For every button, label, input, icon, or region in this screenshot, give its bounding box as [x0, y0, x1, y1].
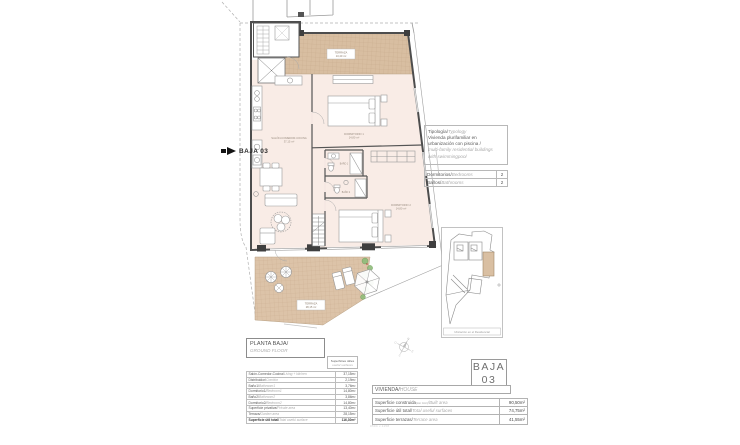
feature-row-bedrooms: Dormitorios/Bedrooms 2: [425, 171, 507, 179]
svg-text:14,80 m²: 14,80 m²: [349, 136, 360, 140]
useful-total-value: 74,75m²: [499, 407, 527, 414]
areas-table: Salón-Comedor-Cocina/Living + kitchen37,…: [246, 371, 358, 424]
features-table: Dormitorios/Bedrooms 2 Baños/Bathrooms 2: [424, 170, 508, 187]
unit-pointer: BAJA 03: [221, 147, 268, 155]
feature-row-bathrooms: Baños/Bathrooms 2: [425, 179, 507, 187]
useful-surfaces-header: Superficies útiles useful surfaces: [327, 356, 358, 369]
floor-title-box: PLANTA BAJA/ GROUND FLOOR: [246, 338, 325, 358]
bathrooms-count: 2: [496, 179, 507, 187]
area-row-total: Superficie útil total/Total useful surfa…: [247, 418, 357, 424]
fine-print: 0504 v.1158: [370, 424, 389, 428]
bathrooms-label-en: Bathrooms: [441, 180, 463, 185]
svg-text:13,40 m²: 13,40 m²: [336, 54, 347, 58]
typology-line4: with swimmingpool: [428, 154, 504, 160]
compass-s: S: [398, 353, 402, 357]
svg-text:BAÑO 2: BAÑO 2: [342, 191, 351, 194]
svg-text:DORMITORIO 2: DORMITORIO 2: [391, 203, 411, 207]
internal-stairs: [313, 214, 325, 246]
floor-title-es: PLANTA BAJA/: [250, 341, 321, 348]
svg-text:TERRAZA: TERRAZA: [335, 50, 348, 54]
arrow-icon-head: [227, 147, 236, 155]
svg-text:28,15 m²: 28,15 m²: [306, 305, 317, 309]
totals-row-useful: Superficie útil total/Total useful surfa…: [373, 407, 527, 415]
compass-e: E: [411, 349, 415, 353]
typology-title-en: Typology: [448, 129, 466, 134]
bathrooms-label-es: Baños/: [427, 180, 441, 185]
bedroom-2: [339, 210, 391, 242]
arrow-icon: [221, 149, 226, 153]
totals-row-built: Superficie construida(con zzcc)/Built ar…: [373, 399, 527, 407]
floorplan-sheet: SALÓN-COMEDOR-COCINA 37,15 m² DORMITORIO…: [0, 0, 740, 445]
totals-row-terrace: Superficie terrazas/Terrace area 41,55m²: [373, 415, 527, 423]
bedrooms-count: 2: [496, 171, 507, 178]
typology-box: Tipología/Typology Vivienda plurifamilia…: [424, 125, 508, 165]
unit-badge: BAJA 03: [471, 359, 507, 386]
svg-text:BAÑO 1: BAÑO 1: [340, 163, 349, 166]
bedrooms-label-en: Bedrooms: [452, 172, 473, 177]
built-area-value: 90,50m²: [499, 399, 527, 406]
totals-table: Superficie construida(con zzcc)/Built ar…: [372, 398, 528, 425]
house-header: VIVIENDA/HOUSE: [372, 385, 511, 394]
svg-text:37,15 m²: 37,15 m²: [284, 140, 295, 144]
floor-plan: SALÓN-COMEDOR-COCINA 37,15 m² DORMITORIO…: [215, 0, 450, 352]
svg-text:DORMITORIO 1: DORMITORIO 1: [344, 132, 364, 136]
typology-line3: multi-family residential buildings: [428, 147, 504, 153]
site-plan: Ubicación en el Residencial: [441, 227, 503, 338]
compass-o: O: [394, 340, 399, 345]
typology-title-es: Tipología/: [428, 129, 448, 134]
house-header-en: HOUSE: [400, 387, 418, 393]
unit-pointer-label: BAJA 03: [239, 148, 268, 155]
stair-lobby: [254, 23, 300, 57]
house-header-es: VIVIENDA/: [375, 387, 400, 393]
floor-title-en: GROUND FLOOR: [250, 348, 321, 354]
useful-surfaces-en: useful surfaces: [328, 363, 357, 368]
svg-text:TERRAZA: TERRAZA: [305, 301, 318, 305]
terrace-total-value: 41,55m²: [499, 415, 527, 423]
compass-rose: N S E O: [392, 334, 416, 358]
lower-terrace: [255, 257, 370, 325]
compass-n: N: [406, 337, 410, 342]
site-plan-caption: Ubicación en el Residencial: [454, 330, 490, 334]
svg-text:14,80 m²: 14,80 m²: [396, 207, 407, 211]
unit-badge-line1: BAJA: [472, 361, 506, 374]
bedrooms-label-es: Dormitorios/: [427, 172, 452, 177]
site-highlight-unit: [483, 252, 494, 276]
